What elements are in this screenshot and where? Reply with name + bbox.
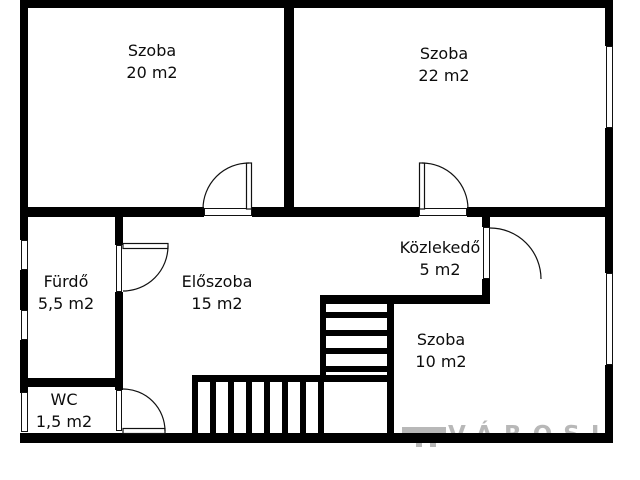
room-name: Közlekedő	[375, 237, 505, 259]
door-leaf-szoba20	[247, 163, 252, 209]
room-name: WC	[0, 389, 129, 411]
room-area: 5,5 m2	[1, 293, 131, 315]
room-area: 1,5 m2	[0, 411, 129, 433]
room-area: 20 m2	[87, 62, 217, 84]
room-label-kozlekedo: Közlekedő 5 m2	[375, 237, 505, 281]
room-name: Szoba	[376, 329, 506, 351]
room-label-szoba10: Szoba 10 m2	[376, 329, 506, 373]
room-label-wc: WC 1,5 m2	[0, 389, 129, 433]
door-arc-wc	[123, 389, 165, 431]
room-label-eloszoba: Előszoba 15 m2	[152, 271, 282, 315]
door-leaf-wc	[123, 429, 165, 434]
room-label-szoba22: Szoba 22 m2	[379, 43, 509, 87]
door-arc-szoba22	[422, 163, 468, 209]
room-area: 5 m2	[375, 259, 505, 281]
room-area: 10 m2	[376, 351, 506, 373]
door-leaf-furdo	[123, 244, 168, 249]
room-name: Szoba	[87, 40, 217, 62]
door-leaf-szoba22	[420, 163, 425, 209]
floor-plan: VÁROSI	[0, 0, 640, 480]
room-name: Fürdő	[1, 271, 131, 293]
room-name: Szoba	[379, 43, 509, 65]
room-name: Előszoba	[152, 271, 282, 293]
room-label-furdo: Fürdő 5,5 m2	[1, 271, 131, 315]
door-arc-szoba20	[203, 163, 249, 209]
room-area: 22 m2	[379, 65, 509, 87]
room-area: 15 m2	[152, 293, 282, 315]
room-label-szoba20: Szoba 20 m2	[87, 40, 217, 84]
